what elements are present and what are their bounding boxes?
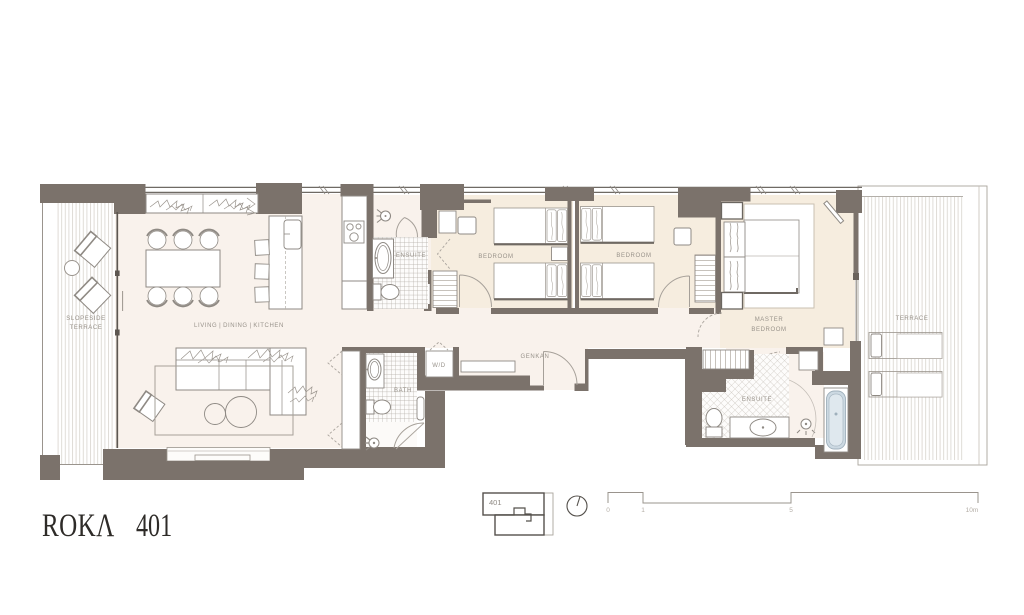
svg-text:LIVING | DINING | KITCHEN: LIVING | DINING | KITCHEN [194,323,284,329]
svg-text:1: 1 [641,507,645,514]
svg-text:BEDROOM: BEDROOM [478,254,513,260]
svg-text:MASTER: MASTER [755,317,784,323]
svg-text:SLOPESIDE: SLOPESIDE [66,316,105,322]
svg-text:BATH: BATH [394,388,412,394]
svg-text:ENSUITE: ENSUITE [742,397,772,403]
svg-text:5: 5 [789,507,793,514]
svg-text:401: 401 [489,498,502,507]
svg-text:BEDROOM: BEDROOM [751,327,786,333]
svg-text:10m: 10m [966,507,979,514]
svg-text:TERRACE: TERRACE [896,316,929,322]
svg-text:BEDROOM: BEDROOM [616,253,651,259]
svg-text:0: 0 [606,507,610,514]
svg-text:TERRACE: TERRACE [70,325,103,331]
svg-text:401: 401 [136,507,172,544]
svg-text:ROKΛ: ROKΛ [42,508,115,544]
svg-text:ENSUITE: ENSUITE [396,253,426,259]
svg-text:GENKAN: GENKAN [521,354,550,360]
svg-text:W/D: W/D [432,363,446,369]
